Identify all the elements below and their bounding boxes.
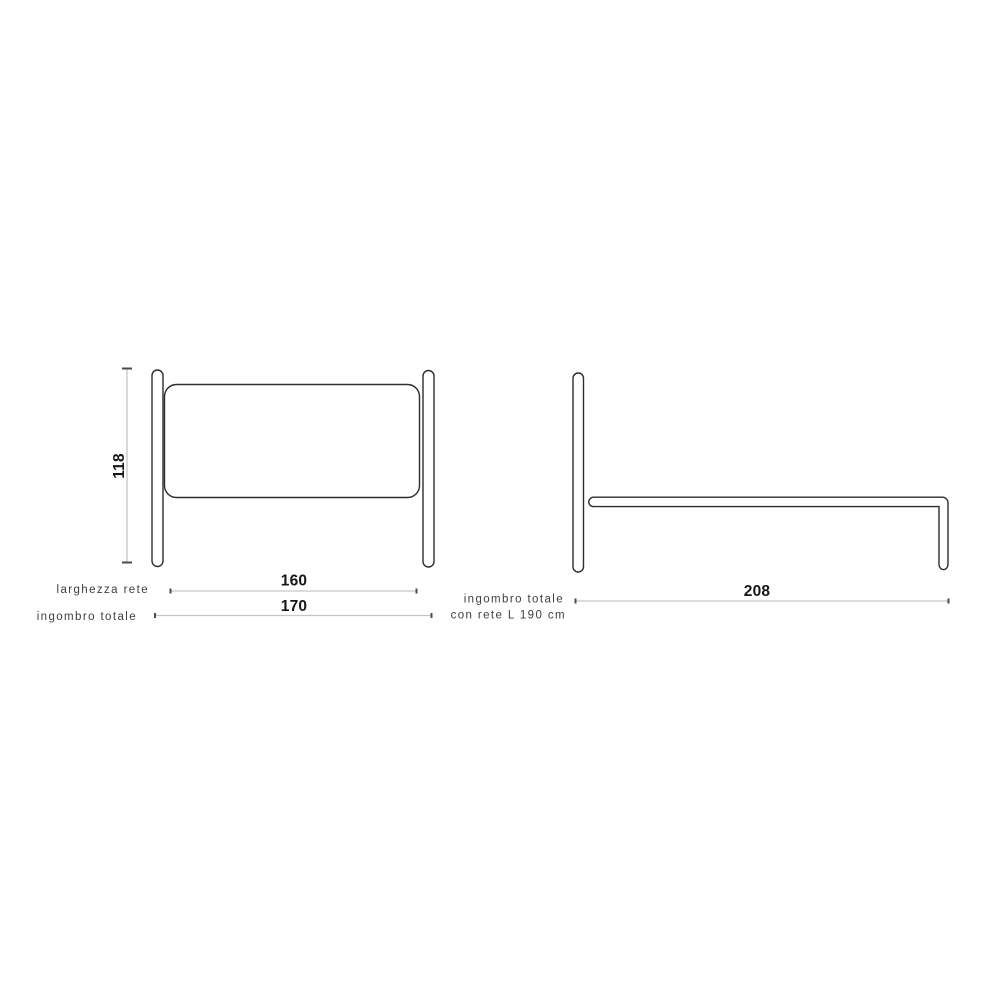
side-headboard-leg: [573, 373, 584, 572]
front-width-totale-label: ingombro totale: [37, 611, 137, 623]
headboard-panel: [165, 385, 420, 498]
front-view: 118 larghezza rete 160 ingombro totale: [37, 369, 434, 624]
front-width-dimension-totale: ingombro totale 170: [37, 598, 432, 623]
side-depth-value: 208: [744, 583, 771, 600]
side-depth-dimension: ingombro totale con rete L 190 cm 208: [451, 583, 949, 622]
technical-drawing-page: 118 larghezza rete 160 ingombro totale: [0, 0, 1000, 1000]
front-height-dimension-value: 118: [111, 453, 128, 479]
front-width-rete-label: larghezza rete: [57, 584, 149, 596]
side-depth-label-line1: ingombro totale: [464, 594, 564, 606]
front-width-totale-value: 170: [281, 598, 307, 615]
front-right-leg: [423, 371, 434, 568]
front-width-dimension-rete: larghezza rete 160: [57, 573, 417, 597]
side-depth-label-line2: con rete L 190 cm: [451, 610, 566, 622]
front-left-leg: [152, 370, 163, 567]
bed-dimension-diagram: 118 larghezza rete 160 ingombro totale: [0, 0, 1000, 1000]
side-rail-and-foot: [589, 497, 948, 569]
side-view: ingombro totale con rete L 190 cm 208: [451, 373, 949, 622]
front-width-rete-value: 160: [281, 573, 307, 590]
